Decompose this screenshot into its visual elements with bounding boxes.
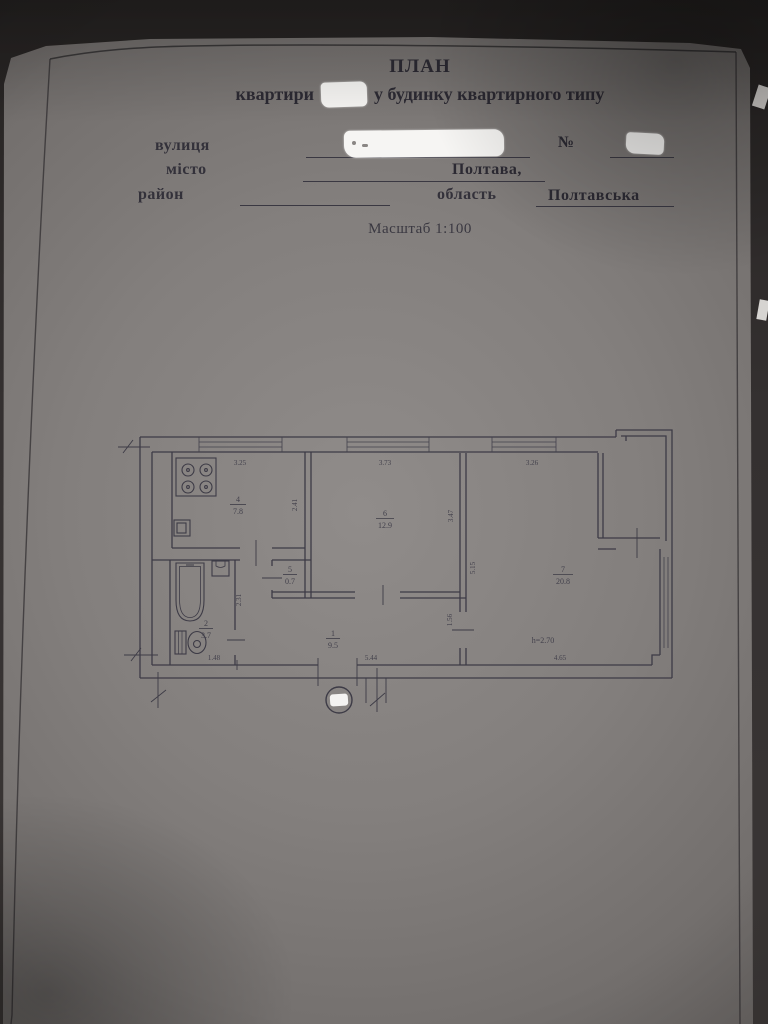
street-label: вулиця xyxy=(155,137,210,155)
photo-background: ПЛАН квартириу будинку квартирного типу … xyxy=(0,0,768,1024)
balcony-inner xyxy=(621,436,666,541)
dimension-bath-width: 1.48 xyxy=(208,654,221,662)
dimension-room7-depth: 5.15 xyxy=(469,561,477,574)
page-title: ПЛАН xyxy=(389,56,450,77)
entrance-step xyxy=(366,678,386,703)
svg-text:2: 2 xyxy=(204,619,208,628)
room-label-kitchen: 4 7.8 xyxy=(230,495,246,516)
subtitle-prefix: квартири xyxy=(236,84,314,104)
svg-text:6: 6 xyxy=(383,509,387,518)
dimension-room7-width: 4.65 xyxy=(554,654,567,662)
street-field-line xyxy=(306,157,530,158)
house-number-redaction xyxy=(625,132,664,155)
dimension-room6-width: 3.73 xyxy=(379,459,392,467)
svg-text:20.8: 20.8 xyxy=(556,577,570,586)
city-value: Полтава, xyxy=(452,161,522,179)
room-labels: 1 9.5 2 3.7 4 7.8 5 0.7 xyxy=(199,495,573,650)
axis-mark-top-left xyxy=(118,440,150,453)
dimension-room6-depth: 3.47 xyxy=(447,509,455,522)
room-label-hallway: 1 9.5 xyxy=(326,629,340,650)
district-field-line xyxy=(240,205,390,206)
oblast-field-line xyxy=(536,206,674,207)
number-label: № xyxy=(558,134,575,152)
city-label: місто xyxy=(166,161,207,179)
bath-sink-icon xyxy=(212,561,229,576)
dimension-bath-depth: 2.31 xyxy=(235,593,243,606)
dimension-kitchen-depth: 2.41 xyxy=(291,498,299,511)
subtitle-line: квартириу будинку квартирного типу xyxy=(100,82,740,107)
ticks-and-axes xyxy=(118,440,637,712)
bathtub-icon xyxy=(176,563,204,621)
room-label-room7: 7 20.8 xyxy=(553,565,573,586)
kitchen-bottom-wall xyxy=(152,548,311,560)
district-label: район xyxy=(138,186,184,204)
dimension-door-wall: 1.56 xyxy=(446,613,454,626)
photo-edge-glare xyxy=(756,299,768,320)
svg-text:12.9: 12.9 xyxy=(378,521,392,530)
entrance-number-redaction xyxy=(330,693,349,706)
stove-icon xyxy=(176,458,216,496)
street-name-redaction xyxy=(344,129,504,158)
oblast-value: Полтавська xyxy=(548,187,640,205)
fixtures xyxy=(174,458,352,713)
dimension-ceiling-height: h=2.70 xyxy=(532,636,555,645)
window-room6 xyxy=(347,437,429,452)
dimensions: 3.25 3.73 3.26 2.41 3.47 5.15 2.31 1.56 … xyxy=(208,459,567,662)
balcony-outer xyxy=(616,430,672,549)
svg-text:5: 5 xyxy=(288,565,292,574)
dimension-kitchen-width: 3.25 xyxy=(234,459,247,467)
scale-note: Масштаб 1:100 xyxy=(120,221,720,238)
room7-nook-wall xyxy=(598,453,603,538)
window-room7-right xyxy=(664,557,668,648)
svg-text:7: 7 xyxy=(561,565,565,574)
redaction-speck xyxy=(352,141,356,145)
floor-plan: 3.25 3.73 3.26 2.41 3.47 5.15 2.31 1.56 … xyxy=(110,415,710,725)
entrance-number-badge xyxy=(326,687,352,713)
oblast-label: область xyxy=(437,186,497,204)
wall-right-inner xyxy=(652,549,660,665)
room-label-room6: 6 12.9 xyxy=(376,509,394,530)
city-field-line xyxy=(303,181,545,182)
svg-text:9.5: 9.5 xyxy=(328,641,338,650)
svg-text:7.8: 7.8 xyxy=(233,507,243,516)
balcony-door-wall xyxy=(598,538,660,549)
svg-text:3.7: 3.7 xyxy=(201,631,211,640)
document-content: ПЛАН квартириу будинку квартирного типу … xyxy=(0,0,768,1024)
kitchen-right-wall xyxy=(305,452,311,598)
axis-mark-bottom-left xyxy=(124,648,158,661)
window-kitchen xyxy=(199,437,282,452)
number-field-line xyxy=(610,157,674,158)
svg-text:4: 4 xyxy=(236,495,240,504)
hall-room7-wall xyxy=(460,453,466,665)
svg-text:1: 1 xyxy=(331,629,335,638)
kitchen-sink-icon xyxy=(174,520,190,536)
apartment-number-redaction xyxy=(321,81,368,108)
room-label-bathroom: 2 3.7 xyxy=(199,619,213,640)
subtitle-suffix: у будинку квартирного типу xyxy=(374,84,604,104)
axis-mark-entrance xyxy=(370,668,385,712)
walls xyxy=(140,430,672,678)
redaction-speck xyxy=(362,144,368,147)
window-room7 xyxy=(492,437,556,452)
room-label-closet: 5 0.7 xyxy=(283,565,297,586)
dimension-room7-nook-width: 3.26 xyxy=(526,459,539,467)
dimension-hall-width: 5.44 xyxy=(365,654,378,662)
room6-bottom-wall xyxy=(311,592,466,598)
entrance-door-ticks xyxy=(318,658,357,686)
svg-text:0.7: 0.7 xyxy=(285,577,295,586)
header: ПЛАН xyxy=(120,56,720,78)
